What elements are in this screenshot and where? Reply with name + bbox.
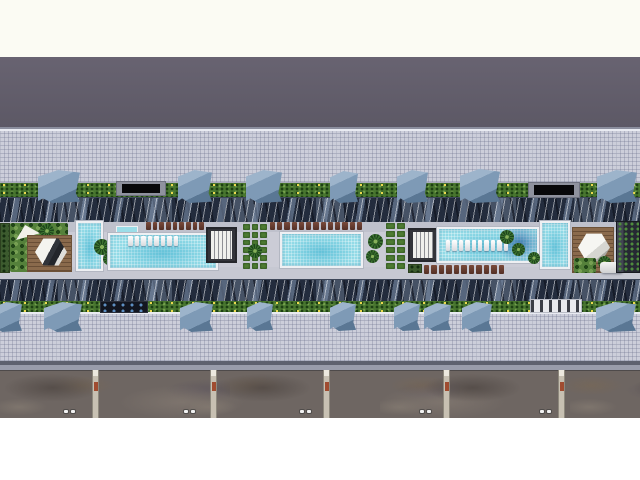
roof-canopy-bottom-6 (394, 302, 420, 331)
roof-canopy-top-4 (330, 171, 358, 203)
render-stage (0, 0, 640, 480)
roof-canopy-bottom-7 (424, 303, 451, 331)
plot-divider-2 (210, 370, 217, 418)
upper-plaza-terrace (0, 129, 640, 183)
bottom-margin (0, 418, 640, 480)
parked-dots-5 (540, 410, 552, 414)
sun-loungers-west (146, 222, 204, 230)
right-garden-plants (574, 258, 596, 273)
roof-canopy-top-3 (246, 170, 282, 203)
roof-canopy-top-1 (38, 170, 80, 203)
roof-canopy-bottom-9 (596, 302, 636, 332)
lower-pavilion-roof (530, 299, 582, 313)
plot-divider-1 (92, 370, 99, 418)
planter-grid-center (385, 222, 406, 270)
center-palm-1 (368, 234, 383, 249)
sun-loungers-center (270, 222, 362, 230)
east-palm-3 (528, 252, 540, 264)
roof-canopy-top-7 (597, 170, 637, 203)
dark-canopy-top-2 (528, 182, 580, 198)
roof-canopy-top-5 (397, 170, 428, 203)
east-palm-1 (500, 230, 514, 244)
pool-pavilion-east (408, 228, 438, 262)
dark-walk-canopy (100, 301, 148, 313)
dark-canopy-top-1 (116, 181, 166, 196)
left-edge-planter (0, 223, 10, 273)
parked-dots-4 (420, 410, 432, 414)
east-palm-2 (512, 243, 525, 256)
parked-dots-3 (300, 410, 312, 414)
in-pool-loungers-east (446, 240, 508, 251)
east-planter (408, 264, 422, 273)
pool-pavilion-west (206, 227, 237, 263)
center-palm-2 (366, 250, 379, 263)
parked-dots-1 (64, 410, 76, 414)
plot-divider-5 (558, 370, 565, 418)
roof-canopy-bottom-2 (44, 302, 82, 332)
upper-glass-roof-band (0, 197, 640, 223)
plunge-pool-east (540, 221, 570, 269)
roof-canopy-bottom-5 (330, 302, 356, 331)
green-roof-structure (616, 221, 640, 273)
roof-canopy-bottom-4 (247, 302, 273, 331)
sun-loungers-east (424, 265, 504, 274)
roof-canopy-top-2 (178, 170, 212, 203)
plot-divider-4 (443, 370, 450, 418)
planter-palm-west (248, 244, 262, 258)
lower-plaza-terrace (0, 312, 640, 362)
center-pool (280, 232, 363, 268)
roof-canopy-bottom-3 (180, 302, 213, 332)
upper-roof-plane (0, 57, 640, 129)
plot-divider-3 (323, 370, 330, 418)
in-pool-loungers-west (128, 236, 178, 246)
roof-canopy-bottom-8 (462, 302, 492, 332)
roof-canopy-top-6 (460, 169, 500, 203)
top-margin (0, 0, 640, 57)
parked-dots-2 (184, 410, 196, 414)
roof-canopy-bottom-1 (0, 302, 22, 332)
